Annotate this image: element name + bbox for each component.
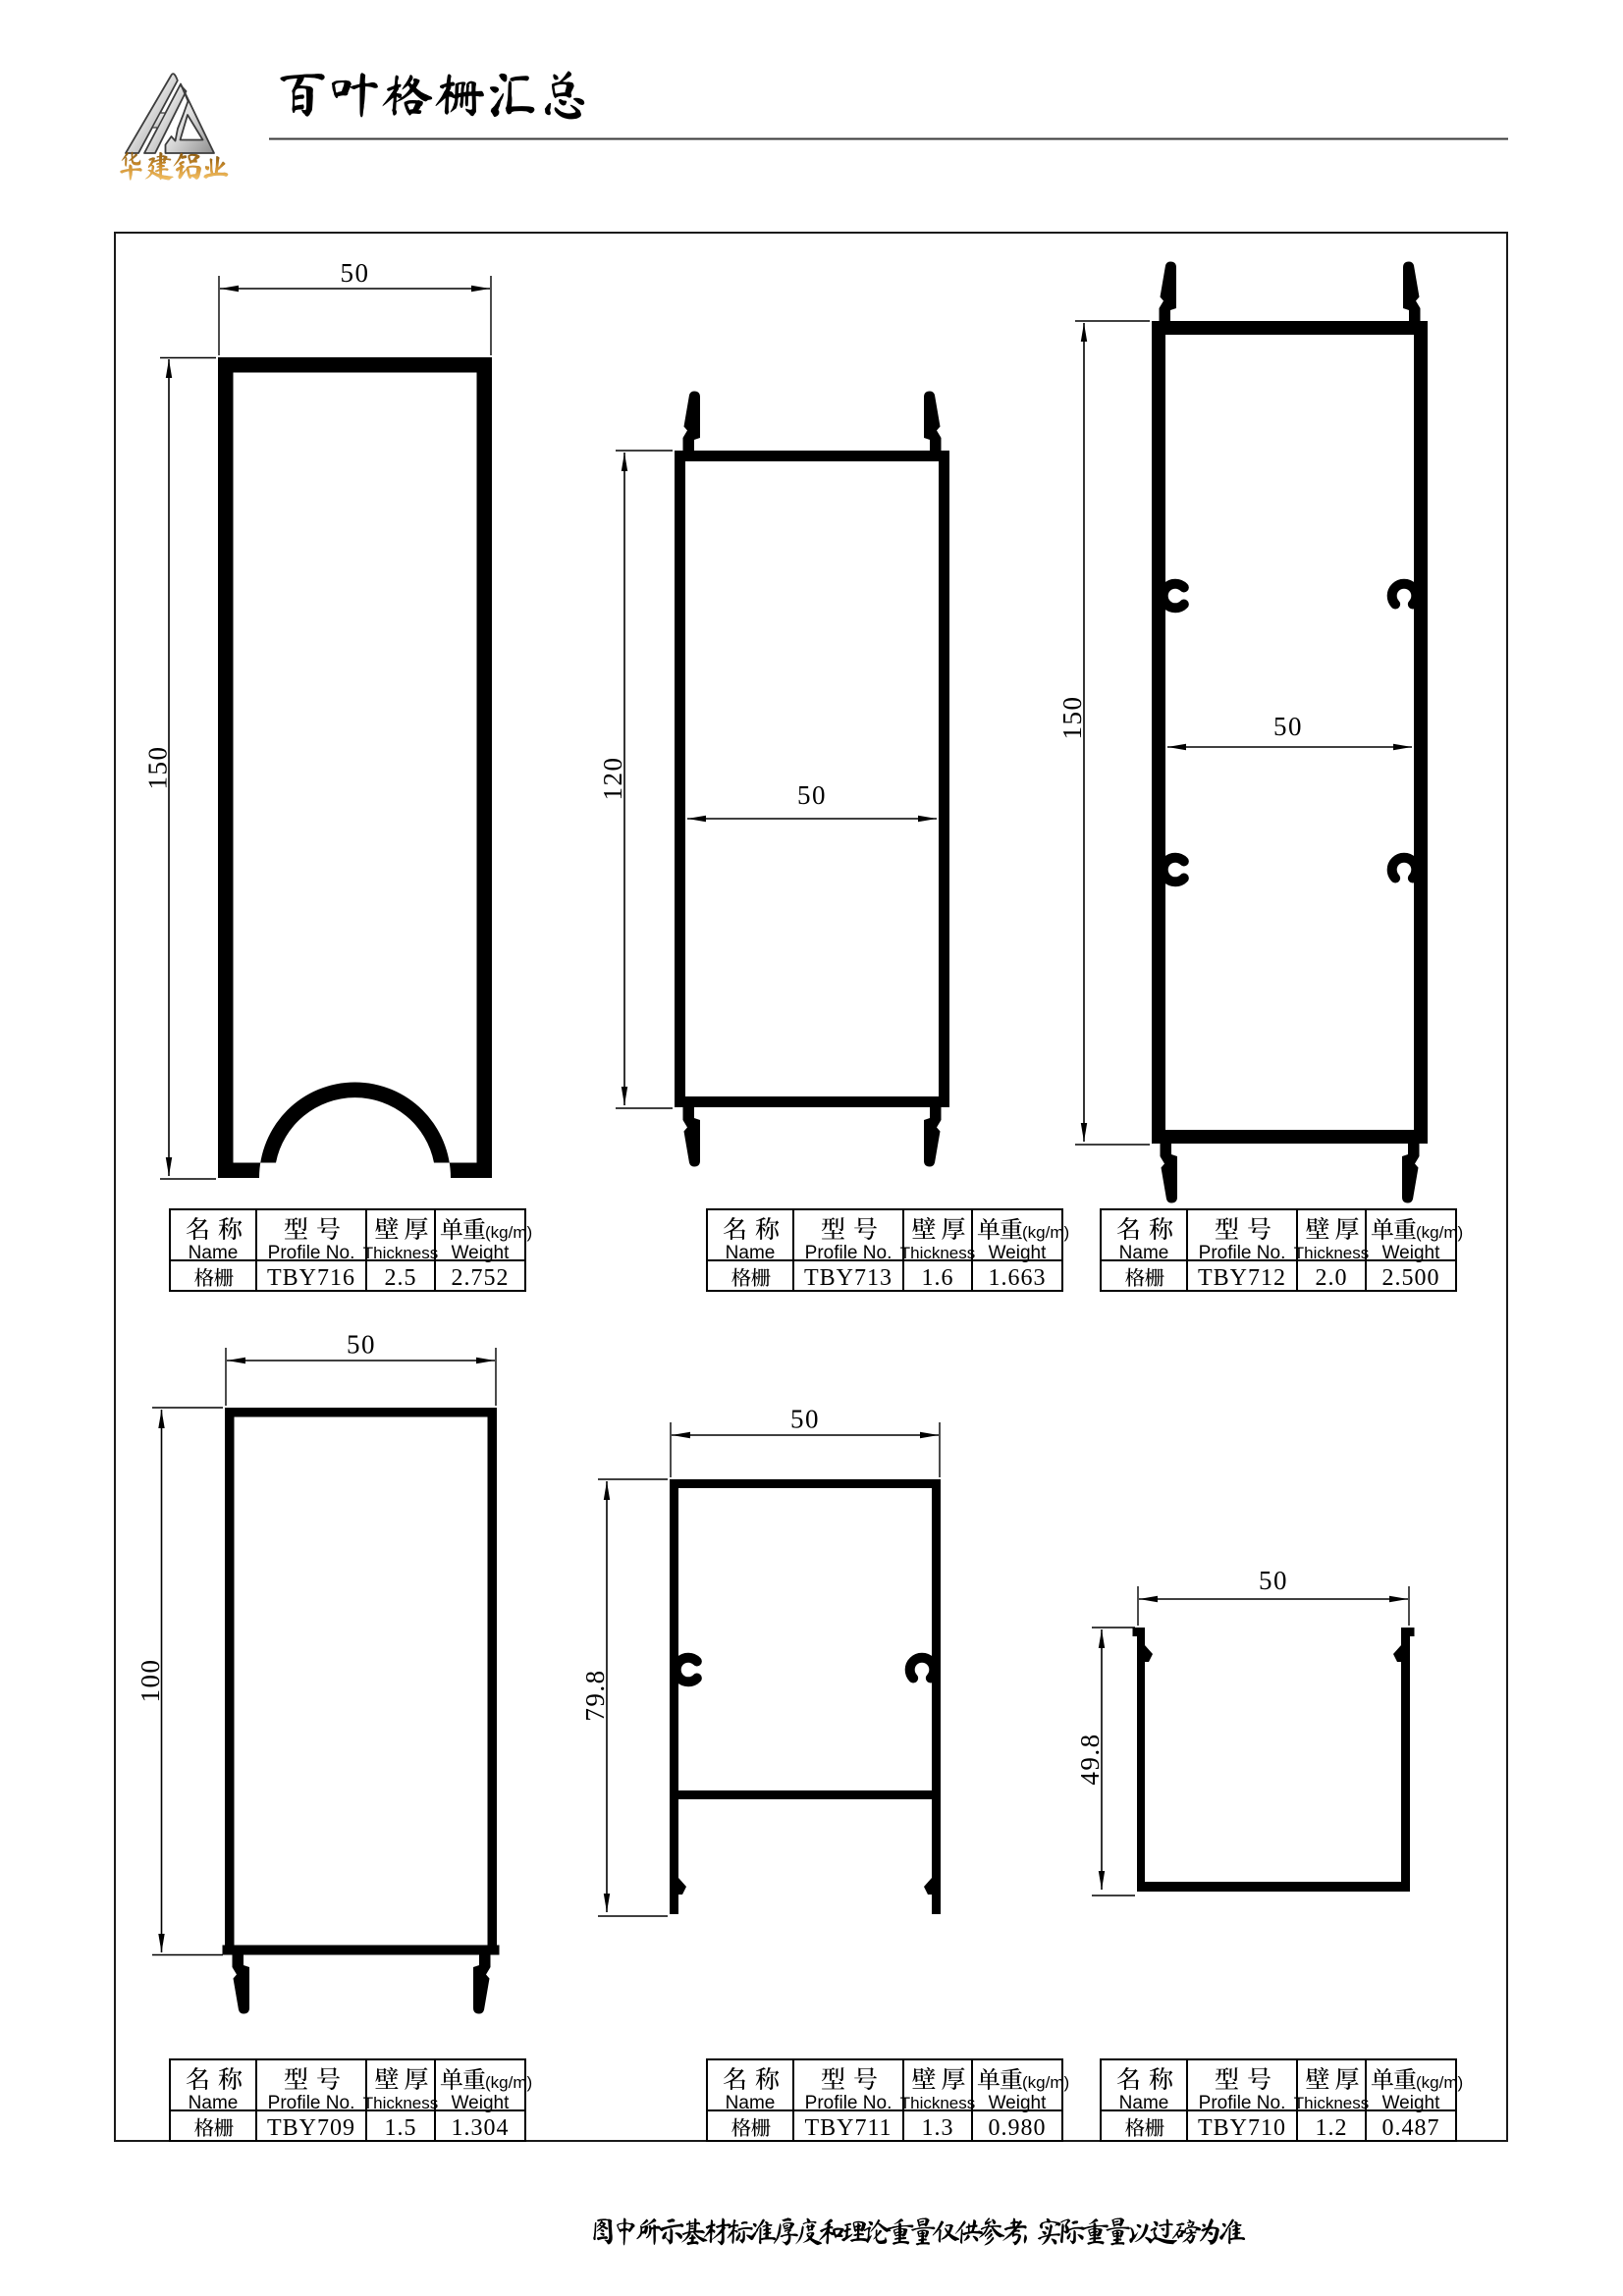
svg-text:50: 50 — [341, 258, 370, 288]
svg-text:1.5: 1.5 — [385, 2115, 417, 2141]
svg-text:Weight: Weight — [989, 1243, 1048, 1263]
svg-text:Name: Name — [1119, 2093, 1169, 2113]
svg-text:Weight: Weight — [452, 1243, 511, 1263]
svg-text:Name: Name — [1119, 1243, 1169, 1263]
svg-text:49.8: 49.8 — [1075, 1733, 1105, 1785]
svg-text:0.487: 0.487 — [1382, 2115, 1440, 2141]
svg-text:Name: Name — [189, 2093, 239, 2113]
svg-text:TBY709: TBY709 — [267, 2115, 355, 2141]
svg-text:1.6: 1.6 — [922, 1265, 954, 1291]
svg-text:Weight: Weight — [1382, 1243, 1441, 1263]
svg-text:79.8: 79.8 — [580, 1669, 610, 1721]
svg-text:(kg/m): (kg/m) — [1416, 1223, 1463, 1242]
svg-text:(kg/m): (kg/m) — [1416, 2073, 1463, 2092]
svg-text:Weight: Weight — [989, 2093, 1048, 2113]
svg-text:150: 150 — [1057, 696, 1087, 740]
svg-text:2.0: 2.0 — [1316, 1265, 1348, 1291]
svg-text:0.980: 0.980 — [989, 2115, 1047, 2141]
svg-text:100: 100 — [135, 1659, 165, 1703]
svg-text:(kg/m): (kg/m) — [1022, 2073, 1069, 2092]
svg-text:50: 50 — [797, 780, 827, 810]
svg-text:50: 50 — [1273, 712, 1303, 741]
svg-text:2.5: 2.5 — [385, 1265, 417, 1291]
svg-text:Name: Name — [189, 1243, 239, 1263]
svg-text:TBY716: TBY716 — [267, 1265, 355, 1291]
svg-text:1.304: 1.304 — [452, 2115, 510, 2141]
svg-text:TBY713: TBY713 — [804, 1265, 893, 1291]
svg-text:Thickness: Thickness — [363, 2094, 439, 2112]
svg-text:150: 150 — [143, 746, 173, 790]
svg-text:1.3: 1.3 — [922, 2115, 954, 2141]
svg-text:Profile No.: Profile No. — [268, 2093, 355, 2113]
svg-text:120: 120 — [598, 757, 627, 801]
svg-text:50: 50 — [1259, 1566, 1288, 1595]
svg-text:50: 50 — [790, 1405, 820, 1434]
svg-text:(kg/m): (kg/m) — [1022, 1223, 1069, 1242]
svg-text:2.500: 2.500 — [1382, 1265, 1440, 1291]
svg-text:Weight: Weight — [1382, 2093, 1441, 2113]
svg-text:Thickness: Thickness — [900, 1244, 976, 1262]
svg-text:Profile No.: Profile No. — [805, 1243, 893, 1263]
svg-text:50: 50 — [347, 1330, 376, 1360]
svg-text:Weight: Weight — [452, 2093, 511, 2113]
svg-text:Name: Name — [726, 1243, 776, 1263]
svg-text:2.752: 2.752 — [452, 1265, 510, 1291]
svg-text:Profile No.: Profile No. — [1199, 2093, 1286, 2113]
svg-text:Thickness: Thickness — [1294, 1244, 1370, 1262]
svg-text:Profile No.: Profile No. — [1199, 1243, 1286, 1263]
svg-text:Profile No.: Profile No. — [805, 2093, 893, 2113]
svg-text:Thickness: Thickness — [1294, 2094, 1370, 2112]
svg-text:TBY711: TBY711 — [804, 2115, 892, 2141]
svg-text:1.663: 1.663 — [989, 1265, 1047, 1291]
svg-text:Name: Name — [726, 2093, 776, 2113]
svg-text:(kg/m): (kg/m) — [485, 2073, 532, 2092]
svg-text:Profile No.: Profile No. — [268, 1243, 355, 1263]
svg-text:TBY710: TBY710 — [1198, 2115, 1286, 2141]
svg-text:TBY712: TBY712 — [1198, 1265, 1286, 1291]
svg-text:(kg/m): (kg/m) — [485, 1223, 532, 1242]
svg-text:Thickness: Thickness — [900, 2094, 976, 2112]
svg-text:Thickness: Thickness — [363, 1244, 439, 1262]
svg-text:1.2: 1.2 — [1316, 2115, 1348, 2141]
